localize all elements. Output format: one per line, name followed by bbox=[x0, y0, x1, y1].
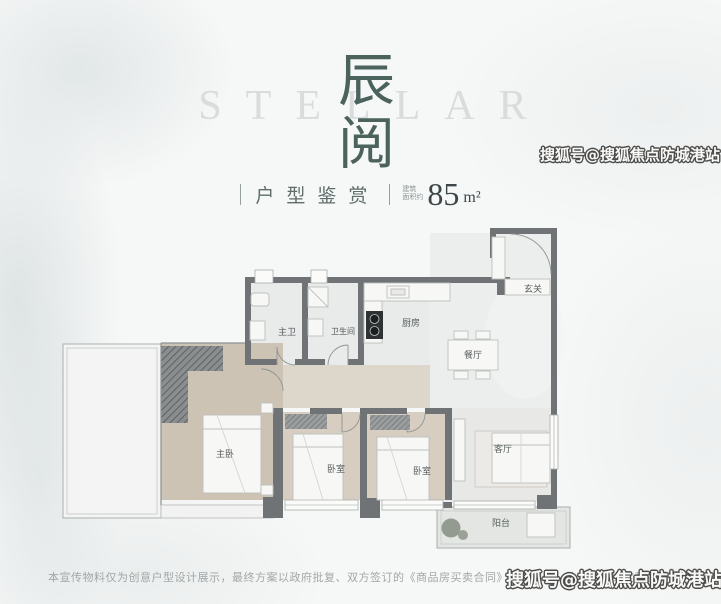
label-dining: 餐厅 bbox=[464, 349, 482, 360]
area-prefix-line2: 面积约 bbox=[402, 194, 423, 202]
tv-cabinet bbox=[454, 419, 465, 481]
subtitle-row: 户型鉴赏 建筑 面积约 85 m² bbox=[0, 179, 721, 209]
label-bathroom: 卫生间 bbox=[331, 326, 355, 336]
subtitle-text: 户型鉴赏 bbox=[255, 181, 379, 208]
label-master-bedroom: 主卧 bbox=[216, 448, 234, 459]
label-kitchen: 厨房 bbox=[402, 317, 420, 328]
area-value: 85 bbox=[427, 179, 459, 209]
wardrobe-bedroom-a bbox=[285, 414, 327, 429]
stove-icon bbox=[366, 311, 383, 339]
label-bedroom-b: 卧室 bbox=[413, 465, 431, 476]
sohu-watermark-bottom: 搜狐号@搜狐焦点防城港站 bbox=[506, 566, 721, 592]
label-bedroom-a: 卧室 bbox=[327, 463, 345, 474]
divider-bar-right bbox=[389, 184, 390, 205]
shoe-cabinet bbox=[492, 237, 505, 279]
label-entry: 玄关 bbox=[524, 283, 542, 294]
floorplan: 玄关 主卫 卫生间 厨房 餐厅 主卧 卧室 卧室 客厅 阳台 bbox=[55, 219, 580, 557]
area-prefix: 建筑 面积约 bbox=[402, 186, 423, 202]
balcony-cabinet bbox=[527, 513, 555, 537]
vanity-sink-icon bbox=[250, 321, 265, 340]
title-char-1: 辰 bbox=[6, 50, 721, 113]
wardrobe-bedroom-b bbox=[370, 415, 410, 430]
label-master-bath: 主卫 bbox=[278, 326, 296, 337]
sohu-watermark-top: 搜狐号@搜狐焦点防城港站 bbox=[540, 144, 720, 165]
area-info: 建筑 面积约 85 m² bbox=[402, 179, 480, 209]
label-living: 客厅 bbox=[494, 443, 512, 454]
bath-sink-icon bbox=[308, 319, 323, 336]
label-balcony: 阳台 bbox=[492, 517, 510, 528]
area-unit: m² bbox=[463, 189, 480, 207]
promo-page: STELLAR 辰 阅 户型鉴赏 建筑 面积约 85 m² bbox=[0, 0, 721, 604]
area-prefix-line1: 建筑 bbox=[402, 186, 423, 194]
divider-bar-left bbox=[240, 184, 241, 205]
toilet-icon bbox=[251, 293, 269, 306]
